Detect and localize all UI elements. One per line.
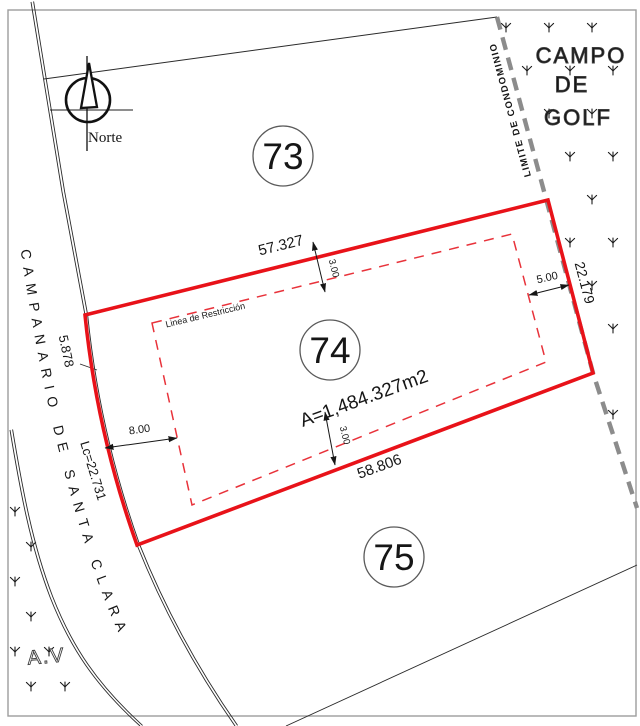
grass-mark-icon xyxy=(608,410,617,419)
golf-labels: CAMPO DE GOLF xyxy=(536,43,627,130)
north-arrow-pointer-icon xyxy=(81,63,97,108)
dim-setback-bottom: 3.00 xyxy=(337,425,352,446)
lot-75-label: 75 xyxy=(373,537,414,578)
north-label: Norte xyxy=(88,130,122,146)
grass-mark-icon xyxy=(587,23,596,32)
golf-label-line2: DE xyxy=(555,72,590,97)
grass-mark-icon xyxy=(10,577,19,586)
lot-73-label: 73 xyxy=(262,136,303,177)
lot-74-label: 74 xyxy=(309,330,350,371)
dim-bottom-side: 58.806 xyxy=(355,451,404,483)
dim-setback-right: 5.00 xyxy=(536,270,560,287)
grass-mark-icon xyxy=(10,647,19,656)
grass-mark-icon xyxy=(26,682,35,691)
green-area-label: A.V xyxy=(26,644,66,669)
setback-right-arrow xyxy=(529,285,569,295)
grass-mark-icon xyxy=(565,152,574,161)
lot-numbers: 73 74 75 xyxy=(253,126,424,587)
grass-mark-icon xyxy=(544,23,553,32)
grass-mark-icon xyxy=(608,238,617,247)
grass-mark-icon xyxy=(10,507,19,516)
setback-left-arrow xyxy=(105,438,177,448)
grass-mark-icon xyxy=(522,66,531,75)
grass-mark-icon xyxy=(565,238,574,247)
grass-mark-icon xyxy=(26,612,35,621)
north-boundary-line xyxy=(44,17,497,79)
golf-label-line3: GOLF xyxy=(544,105,612,130)
grass-mark-icon xyxy=(587,195,596,204)
dim-setback-left: 8.00 xyxy=(128,423,151,438)
golf-label-line1: CAMPO xyxy=(536,43,627,68)
grass-mark-icon xyxy=(608,152,617,161)
dim-top-side: 57.327 xyxy=(257,232,306,260)
restriction-line-label: Linea de Restricción xyxy=(164,301,246,330)
plat-drawing-sheet: Norte 73 74 75 57.327 58.806 22.179 5.87… xyxy=(0,0,640,726)
southeast-boundary-line xyxy=(286,565,637,726)
grass-mark-icon xyxy=(501,23,510,32)
grass-mark-icon xyxy=(60,682,69,691)
dim-left-upper: 5.878 xyxy=(56,334,77,369)
setback-top-arrow xyxy=(313,242,325,292)
dim-setback-top: 3.00 xyxy=(326,258,341,279)
grass-mark-icon xyxy=(608,324,617,333)
